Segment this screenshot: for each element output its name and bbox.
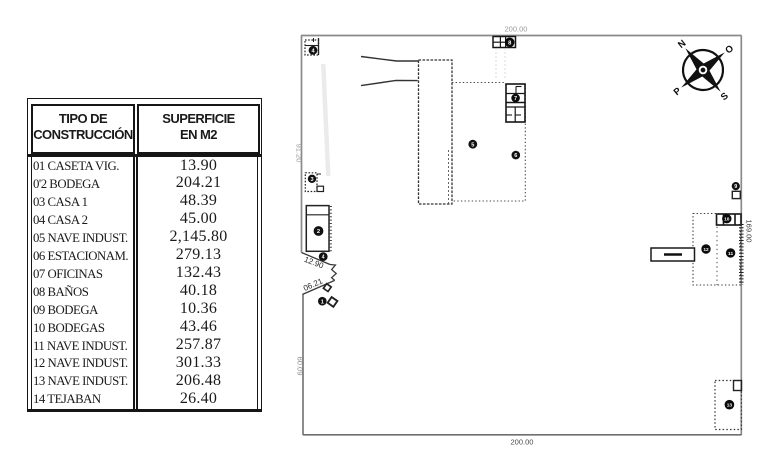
- svg-text:10: 10: [724, 217, 730, 223]
- svg-text:2: 2: [317, 229, 320, 235]
- svg-text:S: S: [719, 91, 731, 104]
- svg-text:200.00: 200.00: [505, 25, 528, 34]
- svg-text:60.09: 60.09: [296, 357, 305, 376]
- svg-text:7: 7: [514, 96, 517, 102]
- svg-text:11: 11: [728, 251, 733, 257]
- svg-text:O: O: [723, 43, 736, 56]
- svg-text:13: 13: [727, 403, 733, 409]
- svg-text:6: 6: [514, 153, 517, 159]
- svg-text:200.00: 200.00: [511, 438, 534, 447]
- svg-text:9: 9: [734, 184, 737, 190]
- svg-text:3: 3: [310, 177, 313, 183]
- svg-text:12: 12: [703, 247, 709, 253]
- svg-text:5: 5: [471, 142, 474, 148]
- svg-text:91.20: 91.20: [295, 144, 304, 163]
- svg-text:169.00: 169.00: [745, 220, 754, 243]
- svg-text:1: 1: [321, 299, 324, 305]
- svg-text:4: 4: [322, 255, 325, 261]
- svg-text:N: N: [676, 38, 688, 51]
